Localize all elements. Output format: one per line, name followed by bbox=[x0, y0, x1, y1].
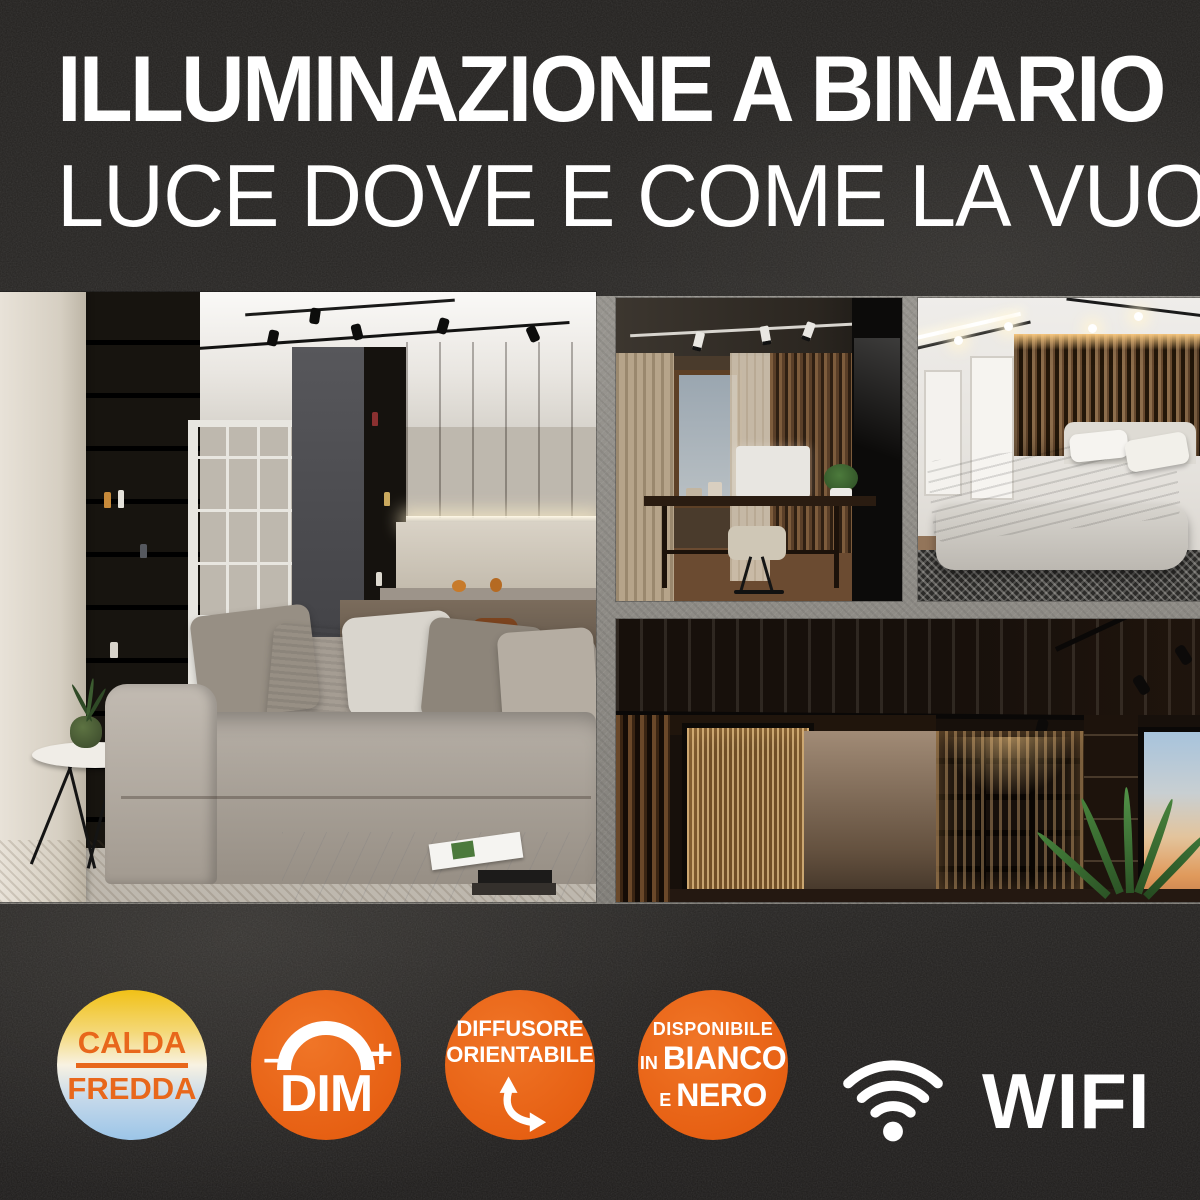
wifi-label: WIFI bbox=[982, 1062, 1151, 1140]
track-spotlight-glow bbox=[1004, 322, 1013, 331]
sofa-seam bbox=[121, 796, 591, 799]
headboard-backlight bbox=[1014, 334, 1200, 350]
photo-home-office bbox=[616, 298, 902, 601]
page-subtitle: LUCE DOVE E COME LA VUOI! bbox=[57, 152, 1200, 240]
bottle bbox=[110, 642, 118, 658]
diffuser-line2: ORIENTABILE bbox=[446, 1042, 593, 1068]
desk-leg bbox=[834, 506, 839, 588]
diffuser-line1: DIFFUSORE bbox=[446, 1016, 593, 1042]
photo-living-room bbox=[0, 292, 596, 902]
wood-upper-cabinets bbox=[406, 342, 596, 518]
track-spotlight-glow bbox=[1134, 312, 1143, 321]
book bbox=[472, 883, 556, 895]
curved-double-arrow-icon bbox=[487, 1070, 553, 1132]
photo-hallway-library bbox=[616, 619, 1200, 902]
bottle bbox=[140, 544, 147, 558]
desk-leg bbox=[662, 506, 667, 588]
decor-fruit bbox=[452, 580, 466, 592]
finishes-bianco: BIANCO bbox=[663, 1040, 786, 1077]
fluted-glass-door bbox=[682, 723, 814, 902]
finishes-nero: NERO bbox=[676, 1077, 766, 1114]
bottle bbox=[104, 492, 111, 508]
table-leg bbox=[30, 763, 73, 864]
badge-fredda-label: FREDDA bbox=[67, 1073, 196, 1104]
track-spotlight-glow bbox=[1088, 324, 1097, 333]
badge-adjustable-diffuser: DIFFUSORE ORIENTABILE bbox=[445, 990, 595, 1140]
chair-base bbox=[734, 590, 784, 594]
monitor bbox=[736, 446, 810, 498]
countertop bbox=[380, 588, 596, 600]
diffuser-label: DIFFUSORE ORIENTABILE bbox=[446, 1016, 593, 1068]
wifi-icon bbox=[830, 1048, 956, 1144]
photo-bedroom bbox=[918, 298, 1200, 601]
bookshelf-glow bbox=[946, 737, 1074, 797]
taupe-wall bbox=[804, 731, 936, 902]
finishes-line2: IN BIANCO bbox=[640, 1040, 786, 1077]
header: ILLUMINAZIONE A BINARIO LUCE DOVE E COME… bbox=[57, 42, 1200, 240]
badge-color-temperature: CALDA FREDDA bbox=[57, 990, 207, 1140]
decor-fruit bbox=[490, 578, 502, 592]
magazine-cover bbox=[451, 841, 475, 860]
badge-calda-label: CALDA bbox=[78, 1027, 187, 1058]
dim-arc-icon bbox=[274, 1012, 378, 1072]
finishes-e: E bbox=[659, 1090, 671, 1111]
divider-line bbox=[76, 1063, 188, 1068]
dim-label: DIM bbox=[251, 1064, 401, 1124]
spotlight-beam bbox=[854, 338, 900, 498]
page-title: ILLUMINAZIONE A BINARIO bbox=[57, 42, 1200, 136]
track-spotlight-glow bbox=[954, 336, 963, 345]
desk-top bbox=[644, 496, 876, 506]
book bbox=[478, 870, 552, 883]
bottle bbox=[118, 490, 124, 508]
bottle bbox=[372, 412, 378, 426]
office-chair bbox=[728, 526, 786, 560]
badge-dimmable: − + DIM bbox=[251, 990, 401, 1140]
glossy-ceiling bbox=[616, 619, 1200, 715]
finishes-line1: DISPONIBILE bbox=[653, 1019, 774, 1040]
finishes-line3: E NERO bbox=[659, 1077, 766, 1114]
badge-finishes: DISPONIBILE IN BIANCO E NERO bbox=[638, 990, 788, 1140]
bottle bbox=[384, 492, 390, 506]
bottle bbox=[376, 572, 382, 586]
finishes-in: IN bbox=[640, 1053, 658, 1074]
sofa-armrest bbox=[105, 684, 217, 884]
wood-slat-partition bbox=[616, 715, 670, 902]
